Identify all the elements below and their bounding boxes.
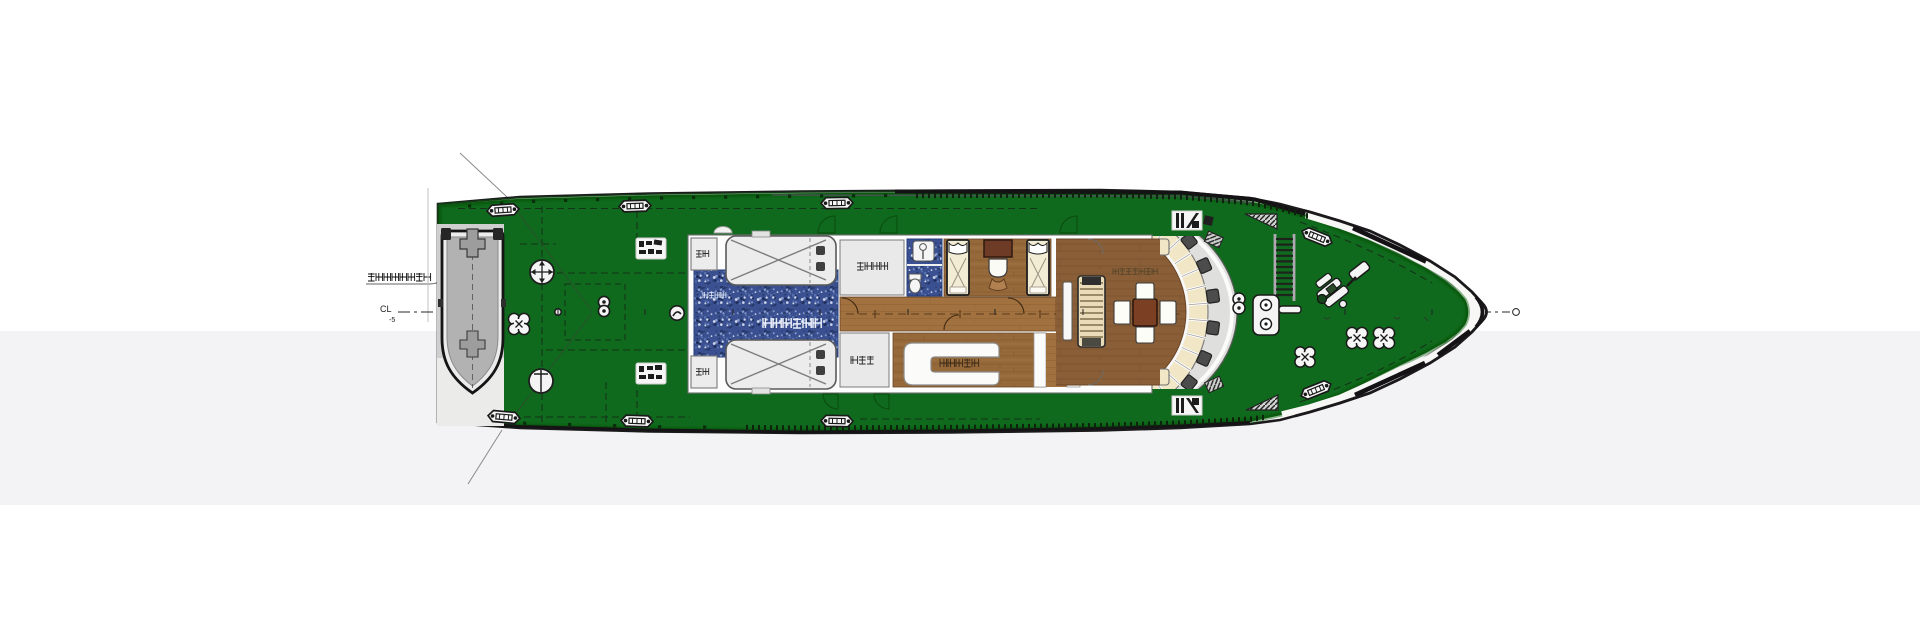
- svg-text:-5: -5: [389, 317, 395, 324]
- svg-text:CL: CL: [380, 304, 392, 314]
